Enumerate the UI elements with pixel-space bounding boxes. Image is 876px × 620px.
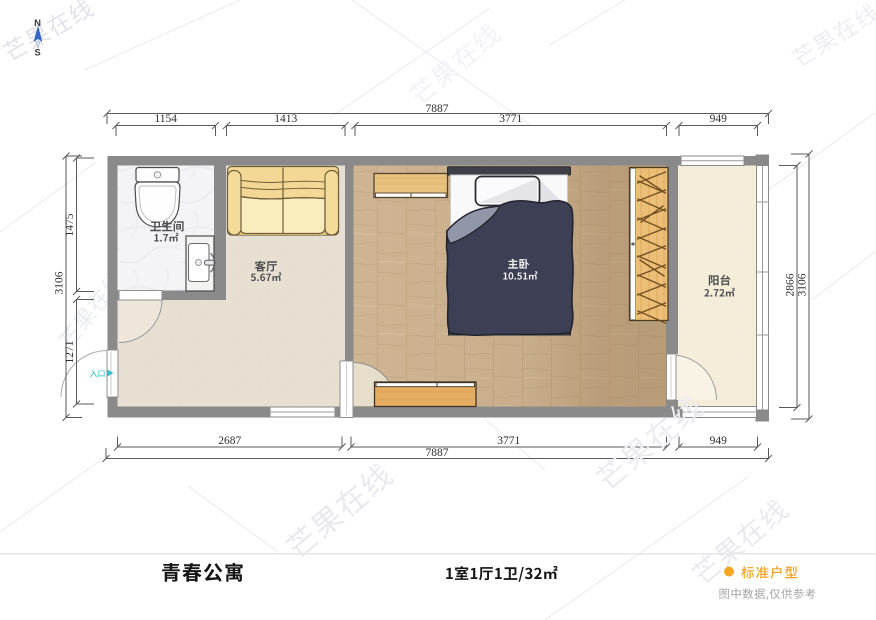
svg-text:1154: 1154 <box>154 113 177 125</box>
svg-text:3771: 3771 <box>497 435 520 447</box>
svg-text:949: 949 <box>710 435 728 447</box>
svg-text:3771: 3771 <box>499 113 522 125</box>
svg-text:7887: 7887 <box>426 103 449 115</box>
svg-text:7887: 7887 <box>426 447 449 459</box>
svg-text:2687: 2687 <box>218 435 241 447</box>
svg-text:949: 949 <box>710 113 728 125</box>
svg-text:3106: 3106 <box>797 273 809 296</box>
svg-text:2866: 2866 <box>785 273 797 296</box>
svg-text:1475: 1475 <box>64 213 76 236</box>
svg-text:S: S <box>34 48 40 59</box>
svg-text:3106: 3106 <box>54 271 66 294</box>
svg-text:1271: 1271 <box>64 340 76 363</box>
svg-text:1413: 1413 <box>274 113 297 125</box>
